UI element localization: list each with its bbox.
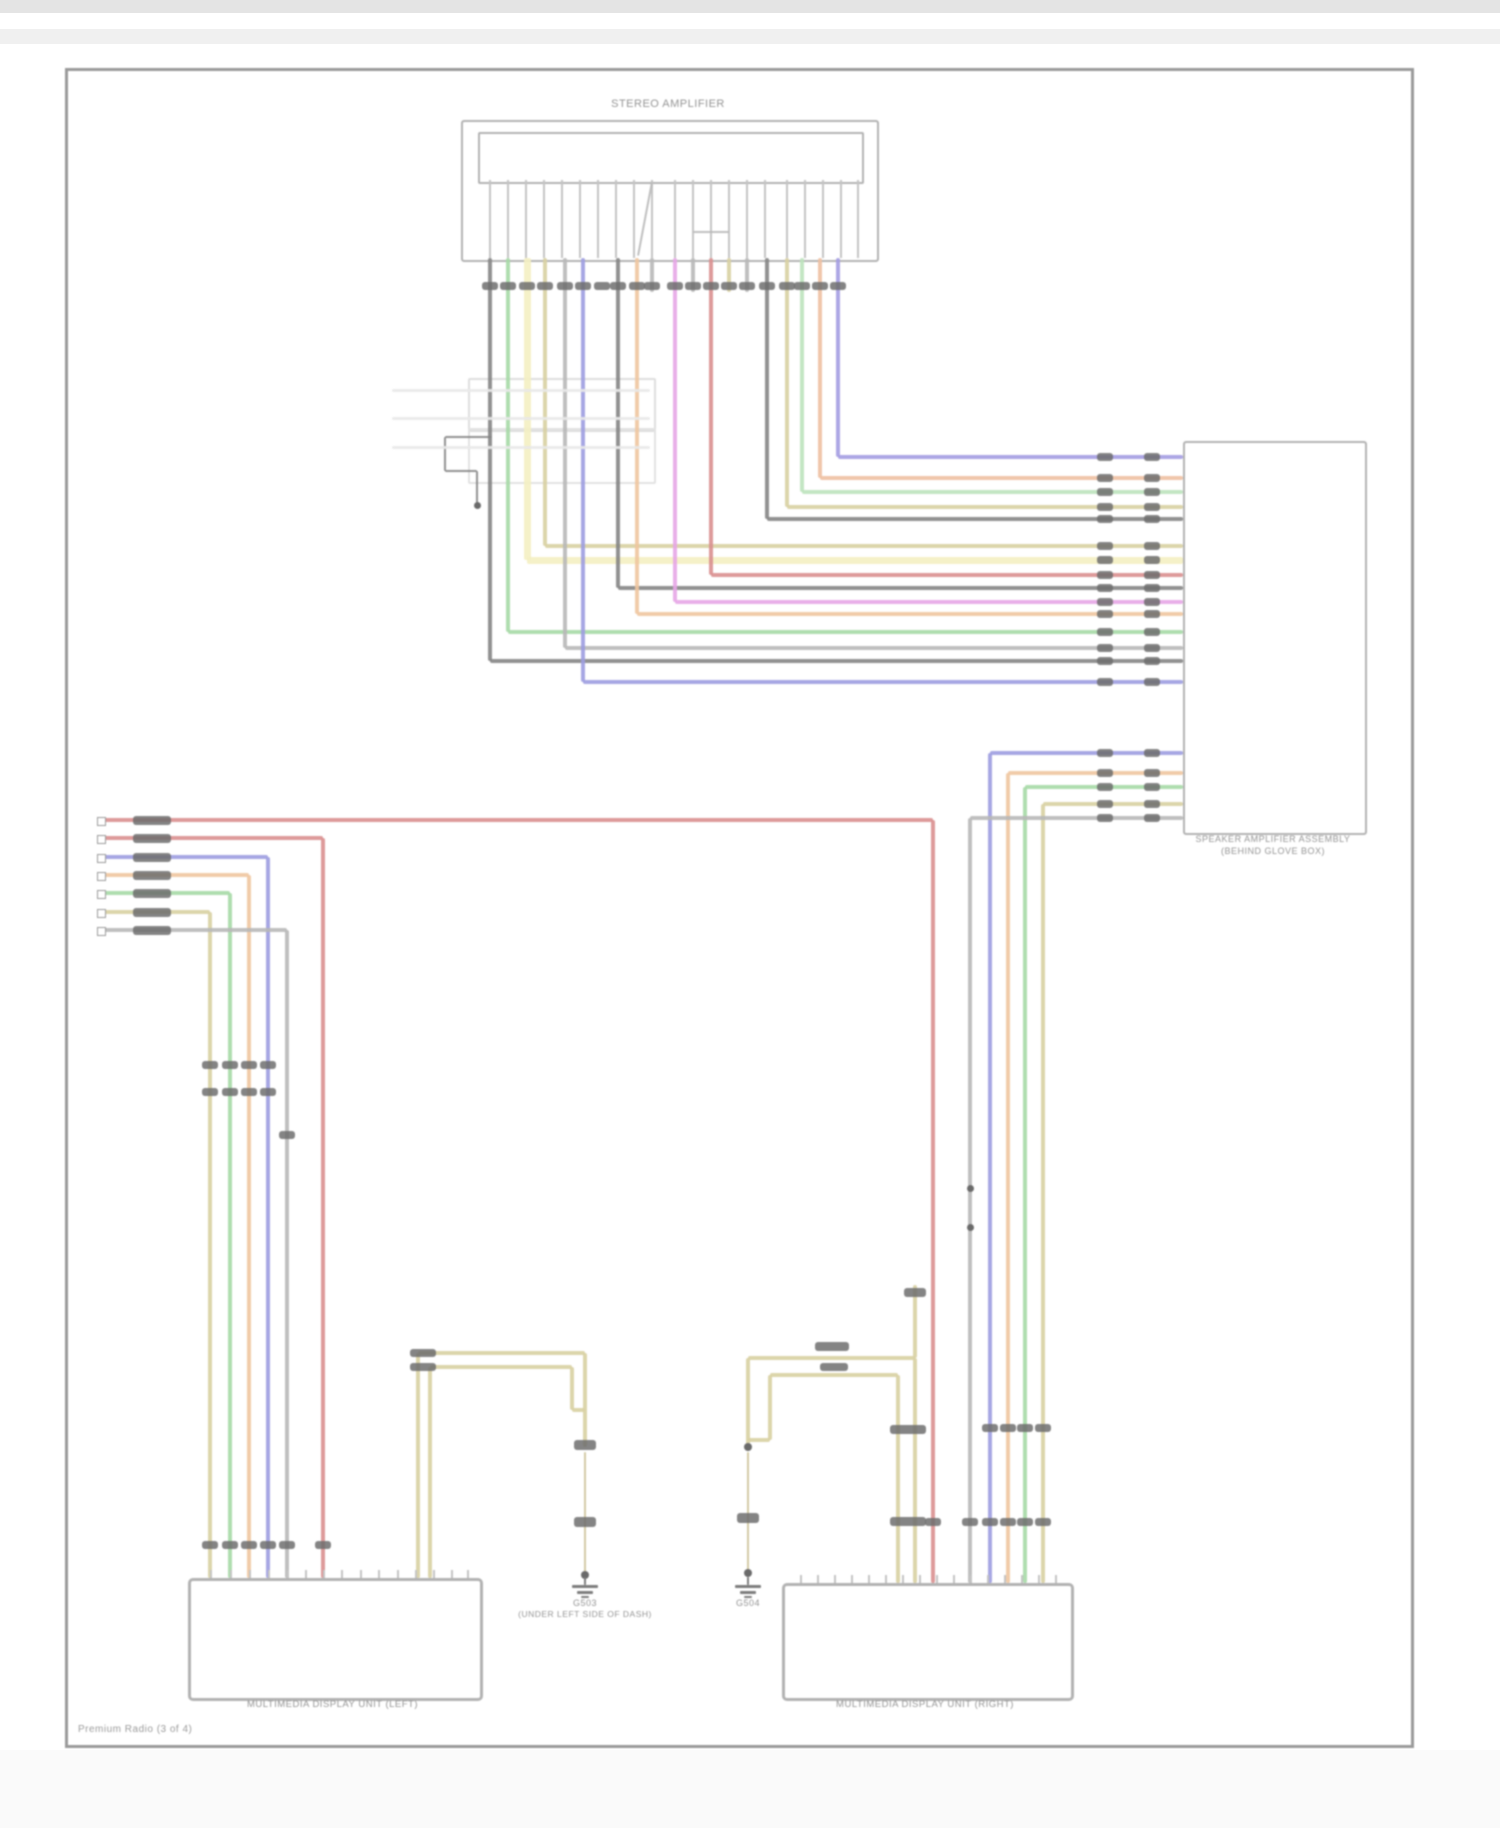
pin-stub (341, 1570, 343, 1578)
connector-blob (820, 1363, 848, 1371)
connector-blob (1097, 453, 1113, 461)
pin-stub (953, 1575, 955, 1583)
wire-segment (563, 258, 567, 648)
connector-blob (222, 1088, 238, 1096)
wire-segment (266, 857, 270, 1578)
connector-blob (1097, 628, 1113, 636)
connector-blob (133, 871, 171, 880)
wire-segment (896, 1375, 900, 1583)
connector-blob (410, 1349, 436, 1357)
connector-blob (759, 282, 775, 290)
connector-blob (1097, 657, 1113, 665)
wire-segment (968, 818, 972, 1583)
wire-segment (444, 437, 446, 471)
faded-connector-box-lower (468, 428, 656, 484)
pin-square (97, 872, 106, 881)
pin-square (97, 817, 106, 826)
connector-pin (857, 180, 859, 258)
connector-blob (133, 853, 171, 862)
connector-blob (1097, 556, 1113, 564)
pin-stub (305, 1570, 307, 1578)
wire-segment (445, 436, 492, 438)
connector-blob (1097, 542, 1113, 550)
connector-pin (597, 180, 599, 258)
bottom-left-unit-box (188, 1578, 483, 1701)
connector-blob (574, 1440, 596, 1450)
pin-stub (433, 1570, 435, 1578)
wire-segment (1043, 802, 1183, 806)
pin-stub (451, 1570, 453, 1578)
connector-blob (557, 282, 573, 290)
connector-blob (279, 1131, 295, 1139)
ground-bar (577, 1591, 593, 1594)
connector-blob (260, 1088, 276, 1096)
right-box-label-line1: SPEAKER AMPLIFIER ASSEMBLY (1143, 834, 1403, 844)
pin-stub (851, 1575, 853, 1583)
connector-blob (904, 1288, 926, 1297)
connector-blob (962, 1518, 978, 1526)
pin-stub (397, 1570, 399, 1578)
connector-pin (822, 180, 824, 258)
connector-blob (737, 1513, 759, 1523)
connector-blob (1144, 657, 1160, 665)
pin-stub (323, 1570, 325, 1578)
connector-pin (746, 180, 748, 258)
connector-blob (519, 282, 535, 290)
wire-segment (802, 490, 1183, 494)
connector-blob (133, 908, 171, 917)
connector-blob (1097, 769, 1113, 777)
wire-segment (524, 258, 531, 560)
wire-segment (709, 258, 713, 575)
connector-blob (982, 1518, 998, 1526)
connector-blob (1035, 1424, 1051, 1432)
ground-stem (747, 1577, 749, 1585)
wire-segment (583, 680, 1183, 684)
connector-blob (667, 282, 683, 290)
connector-pin (786, 180, 788, 258)
connector-blob (739, 282, 755, 290)
connector-blob (241, 1061, 257, 1069)
wiring-diagram-page: STEREO AMPLIFIER SPEAKER AMPLIFIER ASSEM… (0, 0, 1500, 1828)
wire-segment (616, 258, 620, 588)
wire-segment (818, 258, 822, 478)
connector-blob (1144, 556, 1160, 564)
connector-blob (1144, 628, 1160, 636)
wire-segment (392, 389, 650, 392)
connector-blob (260, 1061, 276, 1069)
connector-pin (674, 180, 676, 258)
connector-blob (202, 1061, 218, 1069)
pin-stub (249, 1570, 251, 1578)
wire-segment (103, 873, 249, 877)
connector-pin (764, 180, 766, 258)
pin-stub (268, 1570, 270, 1578)
pin-stub (987, 1575, 989, 1583)
junction-dot (744, 1443, 752, 1451)
wire-segment (913, 1358, 917, 1583)
pin-stub (378, 1570, 380, 1578)
wire-segment (931, 820, 935, 1583)
pin-square (97, 835, 106, 844)
connector-blob (1097, 644, 1113, 652)
connector-blob (1144, 488, 1160, 496)
wire-segment (748, 1438, 770, 1442)
connector-blob (1144, 800, 1160, 808)
wire-segment (765, 258, 769, 519)
connector-blob (1097, 503, 1113, 511)
connector-blob (594, 282, 610, 290)
connector-blob (241, 1541, 257, 1549)
junction-dot (744, 1569, 752, 1577)
wire-segment (1006, 773, 1010, 1583)
pin-stub (467, 1570, 469, 1578)
wire-segment (570, 1367, 574, 1410)
right-box-label-line2: (BEHIND GLOVE BOX) (1143, 846, 1403, 856)
wire-segment (527, 557, 1183, 564)
ground-stem (584, 1577, 586, 1585)
connector-pin (840, 180, 842, 258)
connector-pin (728, 180, 730, 258)
connector-blob (1097, 610, 1113, 618)
pin-stub (1021, 1575, 1023, 1583)
junction-dot (967, 1185, 974, 1192)
connector-blob (1097, 598, 1113, 606)
connector-blob (779, 282, 795, 290)
amplifier-connector-body (478, 132, 864, 184)
wire-segment (545, 544, 1183, 548)
connector-blob (500, 282, 516, 290)
wire-segment (430, 1365, 572, 1369)
page-footer-title: Premium Radio (3 of 4) (78, 1724, 192, 1735)
connector-blob (260, 1541, 276, 1549)
wire-segment (838, 455, 1183, 459)
connector-blob (241, 1088, 257, 1096)
connector-blob (830, 282, 846, 290)
connector-blob (1035, 1518, 1051, 1526)
wire-segment (321, 838, 325, 1578)
connector-blob (1097, 678, 1113, 686)
connector-pin (507, 180, 509, 258)
connector-blob (574, 1517, 596, 1527)
connector-blob (1144, 783, 1160, 791)
junction-dot (967, 1224, 974, 1231)
connector-blob (685, 282, 701, 290)
ground-right-id-label: G504 (688, 1598, 808, 1608)
wire-segment (673, 258, 677, 602)
connector-pin (579, 180, 581, 258)
pin-stub (1004, 1575, 1006, 1583)
pin-stub (800, 1575, 802, 1583)
connector-pin (804, 180, 806, 258)
top-box-label: STEREO AMPLIFIER (461, 98, 875, 110)
connector-blob (890, 1517, 926, 1526)
connector-blob (1144, 515, 1160, 523)
connector-blob (1097, 474, 1113, 482)
connector-blob (1144, 598, 1160, 606)
junction-dot (474, 502, 481, 509)
wire-segment (428, 1367, 432, 1578)
connector-blob (812, 282, 828, 290)
wire-segment (767, 517, 1183, 521)
wire-segment (1023, 787, 1027, 1583)
connector-blob (133, 834, 171, 843)
wire-segment (820, 476, 1183, 480)
ground-left-id-label: G503 (525, 1598, 645, 1608)
pin-stub (868, 1575, 870, 1583)
connector-pin (692, 180, 694, 258)
wire-segment (228, 893, 232, 1578)
connector-blob (1097, 488, 1113, 496)
connector-blob (1097, 749, 1113, 757)
connector-blob (222, 1541, 238, 1549)
connector-blob (721, 282, 737, 290)
pin-stub (415, 1570, 417, 1578)
pin-stub (919, 1575, 921, 1583)
wire-segment (581, 258, 585, 682)
pin-stub (970, 1575, 972, 1583)
ground-bar (740, 1591, 756, 1594)
wire-segment (490, 659, 1183, 663)
bottom-right-box-label: MULTIMEDIA DISPLAY UNIT (RIGHT) (782, 1699, 1068, 1710)
connector-pin (651, 180, 653, 258)
connector-blob (1144, 749, 1160, 757)
bottom-left-box-label: MULTIMEDIA DISPLAY UNIT (LEFT) (188, 1699, 477, 1710)
connector-pin (489, 180, 491, 258)
connector-blob (815, 1342, 849, 1351)
pin-stub (902, 1575, 904, 1583)
ground-bar (735, 1585, 761, 1588)
wire-segment (770, 1373, 898, 1377)
connector-blob (703, 282, 719, 290)
wire-segment (693, 231, 729, 233)
connector-blob (537, 282, 553, 290)
connector-blob (1144, 610, 1160, 618)
wire-segment (103, 928, 287, 932)
wire-segment (392, 446, 650, 449)
wire-segment (285, 930, 289, 1578)
diagram-canvas: STEREO AMPLIFIER SPEAKER AMPLIFIER ASSEM… (0, 0, 1500, 1828)
pin-stub (1055, 1575, 1057, 1583)
pin-square (97, 854, 106, 863)
right-module-box (1183, 441, 1367, 835)
connector-blob (1144, 542, 1160, 550)
wire-segment (800, 258, 804, 492)
wire-segment (103, 855, 268, 859)
connector-blob (1144, 571, 1160, 579)
connector-pin (543, 180, 545, 258)
connector-blob (1097, 571, 1113, 579)
wire-segment (476, 471, 478, 503)
ground-bar (572, 1585, 598, 1588)
pin-stub (1038, 1575, 1040, 1583)
pin-square (97, 909, 106, 918)
connector-blob (1000, 1518, 1016, 1526)
connector-blob (222, 1061, 238, 1069)
connector-blob (1000, 1424, 1016, 1432)
pin-stub (817, 1575, 819, 1583)
wire-segment (572, 1408, 585, 1412)
wire-segment (746, 1358, 750, 1445)
wire-segment (583, 1353, 587, 1447)
connector-blob (1097, 814, 1113, 822)
connector-blob (315, 1541, 331, 1549)
connector-blob (482, 282, 498, 290)
connector-blob (279, 1541, 295, 1549)
connector-blob (1097, 515, 1113, 523)
pin-stub (834, 1575, 836, 1583)
connector-blob (133, 926, 171, 935)
connector-blob (890, 1425, 926, 1434)
wire-segment (208, 912, 212, 1578)
connector-blob (1144, 644, 1160, 652)
connector-blob (1017, 1518, 1033, 1526)
wire-segment (565, 646, 1183, 650)
connector-blob (1144, 474, 1160, 482)
ground-left-location-label: (UNDER LEFT SIDE OF DASH) (475, 1609, 695, 1619)
connector-blob (1097, 584, 1113, 592)
wire-segment (785, 258, 789, 507)
connector-pin (561, 180, 563, 258)
connector-blob (1097, 800, 1113, 808)
wire-segment (1041, 804, 1045, 1583)
connector-blob (202, 1088, 218, 1096)
wire-segment (635, 258, 639, 614)
wire-segment (768, 1375, 772, 1440)
faded-connector-box-upper (468, 378, 656, 432)
wire-segment (392, 417, 650, 420)
pin-stub (885, 1575, 887, 1583)
pin-stub (230, 1570, 232, 1578)
connector-blob (610, 282, 626, 290)
connector-pin (615, 180, 617, 258)
connector-blob (925, 1518, 941, 1526)
connector-blob (794, 282, 810, 290)
wire-segment (488, 258, 492, 661)
connector-blob (1144, 814, 1160, 822)
connector-blob (1097, 783, 1113, 791)
wire-segment (543, 258, 547, 546)
wire-segment (508, 630, 1183, 634)
connector-blob (1144, 584, 1160, 592)
pin-square (97, 890, 106, 899)
pin-stub (287, 1570, 289, 1578)
connector-blob (644, 282, 660, 290)
connector-pin (633, 180, 635, 258)
wire-segment (416, 1353, 420, 1578)
connector-blob (575, 282, 591, 290)
connector-blob (202, 1541, 218, 1549)
wire-segment (445, 470, 477, 472)
pin-stub (210, 1570, 212, 1578)
connector-blob (1144, 678, 1160, 686)
connector-blob (133, 889, 171, 898)
wire-segment (103, 818, 933, 822)
connector-blob (410, 1363, 436, 1371)
pin-stub (936, 1575, 938, 1583)
connector-blob (133, 816, 171, 825)
connector-blob (629, 282, 645, 290)
wire-segment (787, 505, 1183, 509)
pin-stub (360, 1570, 362, 1578)
connector-blob (1017, 1424, 1033, 1432)
bottom-right-unit-box (782, 1583, 1074, 1701)
connector-pin (525, 180, 527, 258)
wire-segment (748, 1356, 915, 1360)
connector-blob (982, 1424, 998, 1432)
wire-segment (247, 875, 251, 1578)
wire-segment (584, 1452, 586, 1575)
pin-square (97, 927, 106, 936)
connector-blob (1144, 503, 1160, 511)
connector-pin (710, 180, 712, 258)
wire-segment (418, 1351, 585, 1355)
connector-blob (1144, 769, 1160, 777)
connector-blob (1144, 453, 1160, 461)
wire-segment (988, 753, 992, 1583)
